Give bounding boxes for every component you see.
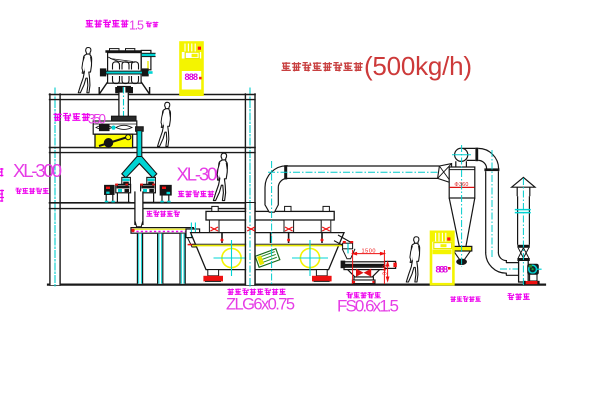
svg-text:888: 888 [185, 72, 199, 82]
svg-text:350: 350 [88, 111, 106, 126]
svg-text:(500kg/h): (500kg/h) [364, 51, 472, 81]
svg-text:Φ360: Φ360 [454, 182, 468, 188]
svg-text:XL-300: XL-300 [13, 160, 62, 181]
svg-text:1.5: 1.5 [129, 19, 144, 33]
svg-text:FS0.6x1.5: FS0.6x1.5 [337, 297, 399, 316]
svg-text:340: 340 [382, 265, 388, 275]
svg-text:ZLG6x0.75: ZLG6x0.75 [226, 296, 295, 314]
svg-text:888: 888 [436, 265, 449, 276]
svg-text:1500: 1500 [362, 248, 376, 254]
